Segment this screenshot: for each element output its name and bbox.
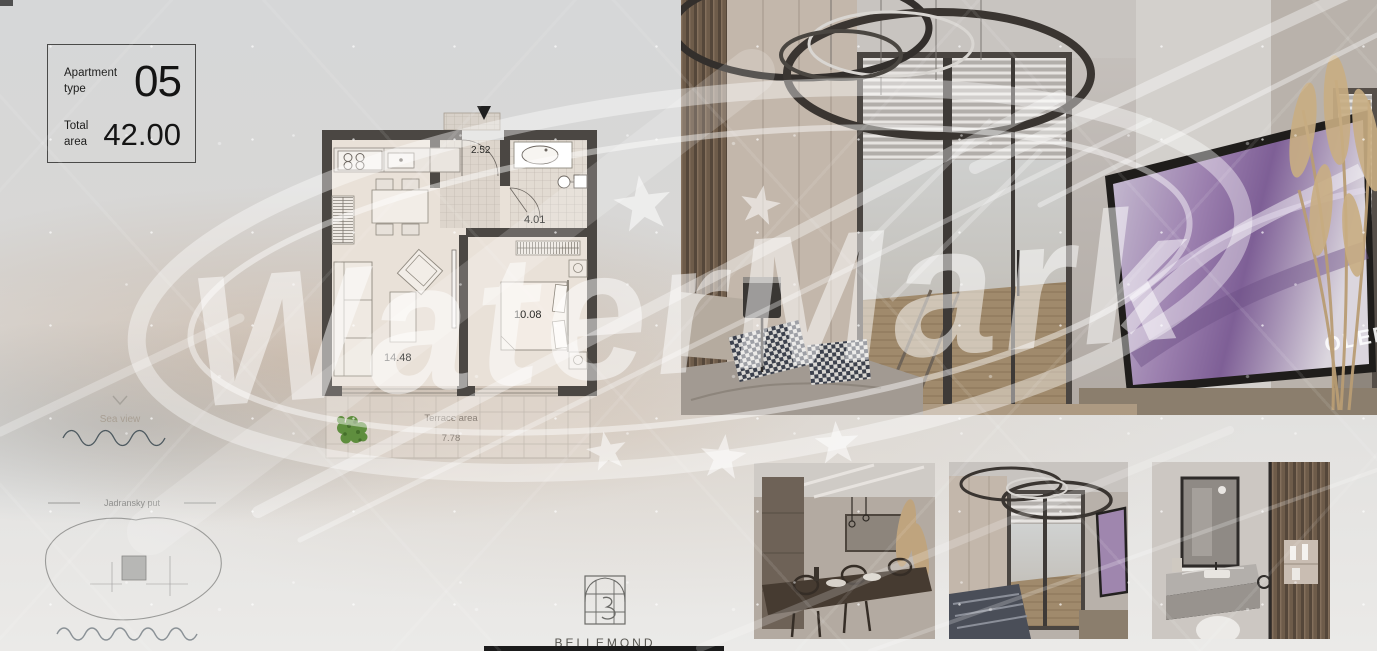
apartment-type-value: 05 (134, 57, 181, 107)
footer-bar (484, 646, 724, 651)
bedroom-wardrobe-hatched (516, 241, 580, 255)
total-area-value: 42.00 (103, 117, 181, 153)
thumb2-tv (1097, 508, 1127, 596)
sea-wave-icon (57, 628, 197, 640)
toilet-icon (558, 176, 570, 188)
highlighted-unit (122, 556, 146, 580)
corner-mark (0, 0, 13, 6)
thumb3-mirror (1182, 478, 1238, 566)
apartment-type-label: Apartment type (64, 66, 126, 97)
arch-window-monogram-icon (581, 572, 629, 628)
kitchen-counter (334, 148, 460, 172)
sea-view-marker: Sea view (55, 390, 185, 450)
terrace-label: Terrace area (424, 413, 478, 424)
thumb2-cabinet (1079, 610, 1128, 639)
apartment-info-card: Apartment type 05 Total area 42.00 (47, 44, 196, 163)
coffee-table (390, 292, 416, 342)
chevron-down-icon (113, 396, 127, 404)
brochure-page: Apartment type 05 Total area 42.00 (0, 0, 1377, 651)
terrace-glass-doors (857, 52, 1072, 410)
sliding-door (452, 250, 456, 328)
sofa (334, 262, 372, 376)
star-icon (611, 171, 675, 233)
houndstooth-pillow-2 (807, 339, 871, 385)
thumbnail-dining (754, 463, 935, 639)
bedroom-area-label: 10.08 (514, 309, 542, 321)
thumb3-plant (1172, 558, 1182, 572)
terrace-area-value: 7.78 (442, 433, 461, 444)
terrace-area: Terrace area 7.78 (326, 396, 590, 458)
thumb1-artwork (846, 515, 904, 551)
thumbnail-bathroom (1152, 462, 1330, 639)
thumb3-shelf-niche (1284, 540, 1318, 584)
site-plan: Jadransky put (32, 492, 232, 647)
wave-icon (63, 431, 165, 446)
main-photo-bedroom: OLED (681, 0, 1377, 415)
total-area-label: Total area (64, 119, 103, 150)
sea-view-label: Sea view (100, 414, 141, 425)
living-area-label: 14.48 (384, 352, 412, 364)
floor-plan: Terrace area 7.78 (318, 100, 608, 465)
wardrobe-hatched (332, 196, 354, 244)
road-label: Jadransky put (104, 498, 161, 508)
thumbnail-bedroom (949, 462, 1128, 639)
bathroom-area-label: 4.01 (524, 214, 545, 226)
star-icon (814, 420, 861, 465)
brand-block: BELLEMOND Residence Montenegro (505, 572, 705, 651)
star-icon (698, 432, 748, 480)
hall-area-label: 2.52 (471, 145, 491, 156)
door-handle (1017, 250, 1020, 296)
thumb2-bed (949, 584, 1031, 639)
terrace-glazing (342, 389, 558, 393)
